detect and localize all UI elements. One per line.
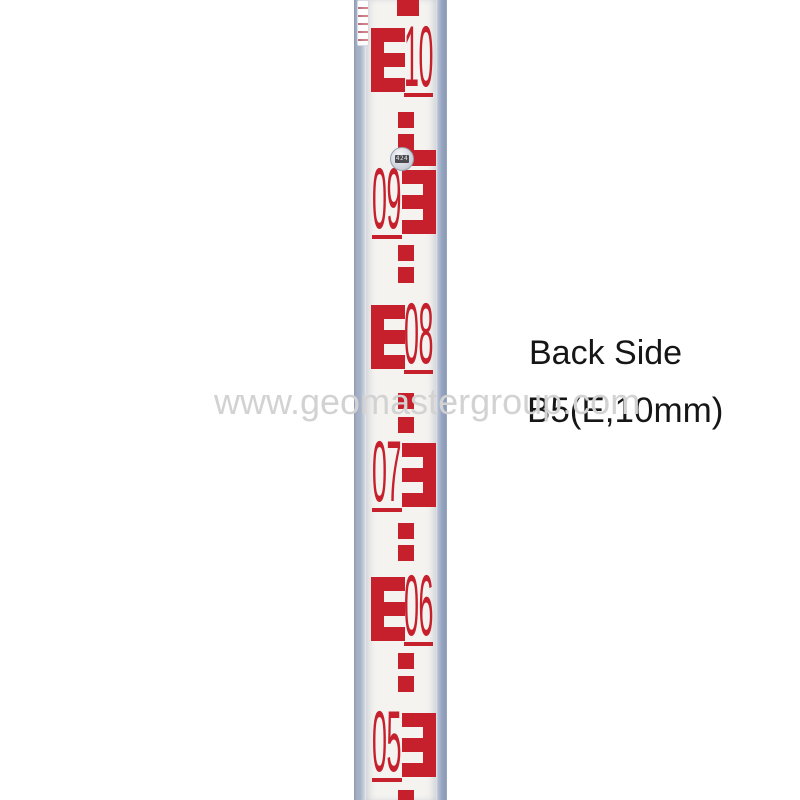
graduation-number: 06	[404, 562, 433, 648]
graduation-number: 05	[372, 698, 401, 784]
e-pattern-glyph	[371, 577, 405, 641]
graduation-mark: 08	[366, 305, 436, 375]
red-graduation-block	[398, 790, 414, 800]
red-graduation-block	[398, 523, 414, 539]
watermark-text: www.geomastergroup.com	[214, 381, 640, 423]
round-sticker: 424	[390, 147, 414, 171]
graduation-number: 07	[372, 428, 401, 514]
graduation-underline	[372, 235, 402, 239]
e-pattern-glyph	[371, 305, 405, 369]
e-pattern-glyph	[371, 28, 405, 92]
e-pattern-glyph	[402, 713, 436, 777]
graduation-mark: 10	[366, 28, 436, 98]
red-graduation-block	[398, 545, 414, 561]
graduation-underline	[404, 370, 433, 374]
e-pattern-glyph	[402, 443, 436, 507]
graduation-underline	[372, 778, 402, 782]
red-graduation-block	[398, 112, 414, 128]
red-graduation-block	[398, 676, 414, 692]
graduation-underline	[404, 642, 433, 646]
e-pattern-glyph	[402, 170, 436, 234]
graduation-underline	[372, 508, 402, 512]
back-side-caption: Back Side	[529, 334, 682, 373]
graduation-number: 10	[404, 13, 433, 99]
graduation-mark: 07	[366, 443, 436, 513]
graduation-mark: 06	[366, 577, 436, 647]
red-graduation-block	[398, 267, 414, 283]
graduation-underline	[404, 93, 433, 97]
red-graduation-block	[398, 653, 414, 669]
graduation-number: 08	[404, 290, 433, 376]
red-graduation-block	[397, 0, 419, 16]
edge-label-sticker	[357, 0, 369, 46]
red-graduation-block	[398, 245, 414, 261]
product-photo: 424 10 09	[0, 0, 800, 800]
sticker-number: 424	[395, 155, 409, 163]
graduation-mark: 09	[366, 170, 436, 240]
graduation-mark: 05	[366, 713, 436, 783]
